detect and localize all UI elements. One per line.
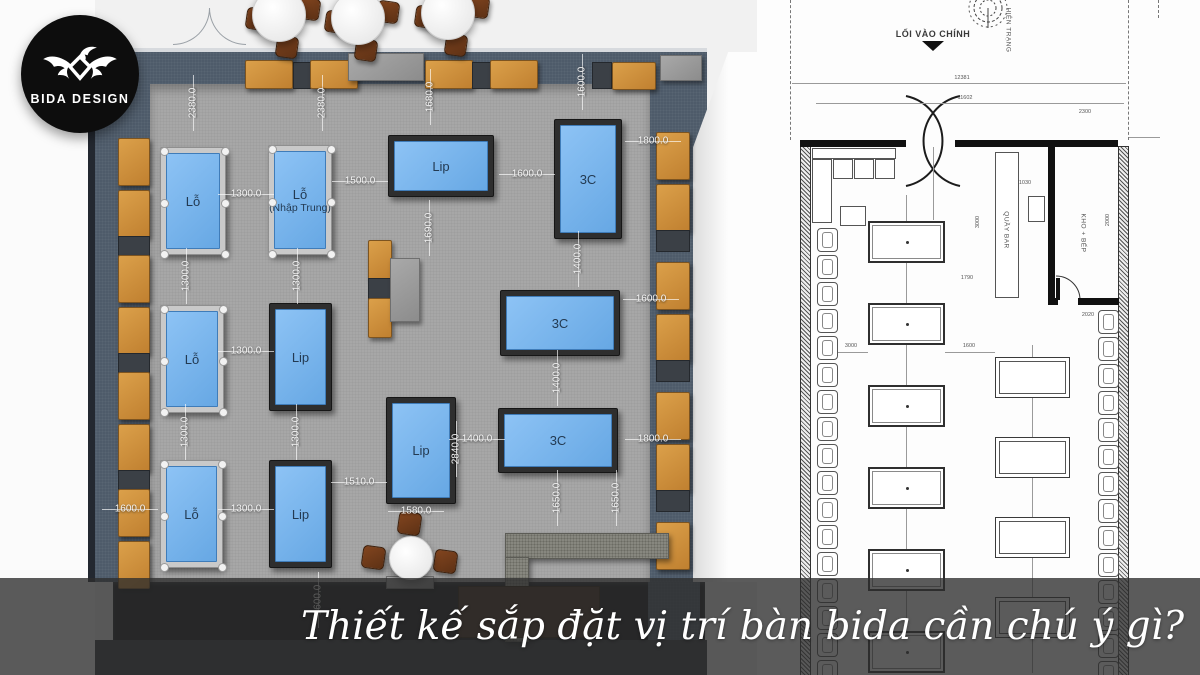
site-status-label: HIỆN TRẠNG — [1005, 8, 1012, 53]
cad-dimension: 2020 — [1082, 312, 1094, 318]
cad-dimension: 2300 — [1079, 109, 1091, 115]
billiard-table: Lỗ — [160, 147, 226, 255]
table-pocket — [160, 357, 169, 366]
table-sub-label: (Nhập Trung) — [269, 202, 331, 214]
dimension-label: 1300.0 — [231, 504, 262, 515]
cad-dimension: 1030 — [1019, 180, 1031, 186]
dimension-label: 1600.0 — [577, 67, 588, 98]
billiard-table: Lip — [388, 135, 494, 197]
table-type-label: 3C — [552, 316, 569, 331]
table-pocket — [160, 408, 169, 417]
cad-billiard-table — [868, 221, 945, 263]
dimension-label: 1300.0 — [291, 417, 302, 448]
dimension-label: 1600.0 — [115, 504, 146, 515]
cad-seat — [817, 363, 838, 387]
cad-seat — [1098, 553, 1119, 577]
bench-spacer — [592, 62, 612, 89]
dim-line — [816, 103, 1124, 104]
bar-counter-label: QUẦY BAR — [1003, 211, 1010, 248]
billiard-table: Lip — [386, 397, 456, 504]
cad-seat — [817, 498, 838, 522]
table-center-dot — [906, 405, 909, 408]
cad-seat — [1098, 391, 1119, 415]
dimension-label: 1580.0 — [401, 506, 432, 517]
dim-line — [945, 352, 995, 353]
table-type-label: Lip — [412, 443, 429, 458]
table-pocket — [219, 408, 228, 417]
bench-cushion — [656, 444, 690, 492]
bench-cushion — [118, 307, 150, 355]
bench-cushion — [368, 240, 392, 280]
cad-seat — [1098, 337, 1119, 361]
bench-spacer — [472, 62, 491, 89]
cad-seat — [1098, 418, 1119, 442]
table-label: Lỗ — [161, 306, 223, 412]
dimension-label: 1400.0 — [462, 434, 493, 445]
table-pocket — [221, 147, 230, 156]
billiard-table: 3C — [498, 408, 618, 473]
bench-spacer — [656, 230, 690, 252]
cad-floorplan: LỐI VÀO CHÍNH HIỆN TRẠNG QUẦY BAR KHO + … — [757, 0, 1200, 675]
round-table — [421, 0, 475, 40]
round-table — [389, 536, 433, 580]
bench-cushion — [245, 60, 293, 89]
dim-line — [838, 352, 868, 353]
table-pocket — [160, 250, 169, 259]
round-table — [252, 0, 306, 42]
sofa-arm — [812, 159, 832, 223]
bench-cushion — [118, 424, 150, 472]
caption-overlay: Thiết kế sắp đặt vị trí bàn bida cần chú… — [0, 578, 1200, 675]
bench-spacer — [368, 278, 392, 300]
entrance-label: LỐI VÀO CHÍNH — [896, 29, 971, 39]
dimension-label: 1300.0 — [181, 261, 192, 292]
dimension-label: 1650.0 — [552, 483, 563, 514]
dimension-label: 1800.0 — [638, 136, 669, 147]
bench-cushion — [368, 298, 392, 338]
dimension-label: 1680.0 — [425, 82, 436, 113]
table-pocket — [218, 512, 227, 521]
dimension-label: 1500.0 — [345, 176, 376, 187]
table-label: Lip — [270, 304, 331, 410]
cad-billiard-table — [995, 437, 1070, 478]
coffee-table — [840, 206, 866, 226]
table-pocket — [268, 145, 277, 154]
bench-cushion — [490, 60, 538, 89]
billiard-table: Lip — [269, 303, 332, 411]
table-pocket — [160, 460, 169, 469]
cad-seat — [817, 336, 838, 360]
table-pocket — [160, 199, 169, 208]
cad-dimension: 11602 — [958, 95, 973, 101]
bench-cushion — [656, 184, 690, 232]
bench-spacer — [118, 353, 150, 374]
cad-seat — [1098, 472, 1119, 496]
sofa-cushion — [833, 159, 853, 179]
cad-seat — [1098, 310, 1119, 334]
caption-text: Thiết kế sắp đặt vị trí bàn bida cần chú… — [301, 604, 1184, 649]
sofa-back — [812, 148, 896, 159]
dimension-label: 1800.0 — [638, 434, 669, 445]
cad-seat — [817, 390, 838, 414]
side-cabinet — [660, 55, 702, 81]
table-type-label: Lip — [432, 159, 449, 174]
table-pocket — [219, 305, 228, 314]
bench-spacer — [118, 470, 150, 491]
dimension-label: 1650.0 — [611, 483, 622, 514]
bench-spacer — [656, 490, 690, 512]
table-type-label: 3C — [580, 172, 597, 187]
table-label: 3C — [499, 409, 617, 472]
dimension-label: 1300.0 — [292, 261, 303, 292]
table-label: Lip — [389, 136, 493, 196]
cad-seat — [817, 255, 838, 279]
door-leaf — [1056, 278, 1060, 300]
bench-cushion — [612, 62, 656, 90]
billiard-table: 3C — [554, 119, 622, 239]
wall — [800, 140, 906, 147]
kitchen-storage-label: KHO + BẾP — [1080, 214, 1087, 253]
cad-dimension: 1600 — [963, 343, 975, 349]
table-pocket — [327, 145, 336, 154]
round-table — [331, 0, 385, 45]
table-center-dot — [906, 569, 909, 572]
bench-cushion — [118, 190, 150, 238]
stool — [433, 549, 459, 575]
bench-cushion — [118, 255, 150, 303]
cad-billiard-table — [995, 357, 1070, 398]
sofa-cushion — [875, 159, 895, 179]
door-swing-arc — [173, 8, 210, 45]
cad-dimension: 1790 — [961, 275, 973, 281]
cad-seat — [817, 552, 838, 576]
cad-seat — [817, 444, 838, 468]
table-center-dot — [906, 241, 909, 244]
table-type-label: Lip — [292, 507, 309, 522]
table-label: Lip — [270, 461, 331, 567]
table-pocket — [160, 305, 169, 314]
dimension-label: 1400.0 — [552, 363, 563, 394]
bench-cushion — [118, 372, 150, 420]
table-pocket — [160, 147, 169, 156]
cad-seat — [1098, 364, 1119, 388]
table-label: Lỗ — [161, 148, 225, 254]
cad-seat — [817, 417, 838, 441]
table-type-label: Lip — [292, 350, 309, 365]
bench-spacer — [118, 236, 150, 257]
wall — [1048, 146, 1055, 304]
wall — [1078, 298, 1119, 305]
dimension-label: 1300.0 — [231, 189, 262, 200]
table-center-dot — [906, 487, 909, 490]
cad-billiard-table — [995, 517, 1070, 558]
brand-name: BIDA DESIGN — [30, 92, 129, 106]
billiard-table: Lỗ — [160, 460, 223, 568]
dimension-label: 1600.0 — [636, 294, 667, 305]
billiard-design-poster: LỗLỗ(Nhập Trung)Lip3CLỗLip3CLip3CLỗLip23… — [0, 0, 1200, 675]
dimension-label: 1400.0 — [573, 244, 584, 275]
table-type-label: 3C — [550, 433, 567, 448]
cad-dimension: 3000 — [845, 343, 857, 349]
cad-billiard-table — [868, 467, 945, 509]
table-pocket — [327, 250, 336, 259]
cad-dimension: 12381 — [954, 75, 969, 81]
cad-seat — [1098, 445, 1119, 469]
table-pocket — [218, 460, 227, 469]
dimension-label: 2380.0 — [317, 88, 328, 119]
bench-spacer — [293, 62, 311, 89]
photo-right-margin — [693, 52, 757, 582]
bench-spacer — [656, 360, 690, 382]
cad-seat — [1098, 499, 1119, 523]
table-label: 3C — [555, 120, 621, 238]
dimension-label: 2380.0 — [188, 88, 199, 119]
stool — [361, 545, 387, 571]
billiard-table: Lỗ(Nhập Trung) — [268, 145, 332, 255]
eagle-icon — [41, 43, 119, 89]
wall — [955, 140, 1118, 147]
table-label: 3C — [501, 291, 619, 355]
bench-cushion — [656, 314, 690, 362]
dim-line — [1128, 137, 1160, 138]
dimension-label: 1600.0 — [512, 169, 543, 180]
dimension-label: 1300.0 — [180, 417, 191, 448]
dimension-label: 1300.0 — [231, 346, 262, 357]
cad-billiard-table — [868, 303, 945, 345]
table-type-label: Lỗ — [186, 194, 200, 209]
entrance-arrow-icon — [922, 41, 944, 51]
boundary-dashed — [1158, 0, 1160, 18]
cad-dimension: 2000 — [1105, 214, 1111, 226]
service-counter — [390, 258, 420, 322]
dimension-label: 2840.0 — [451, 434, 462, 465]
bar-counter-top — [505, 533, 669, 559]
cad-dimension: 3000 — [975, 216, 981, 228]
cad-seat — [817, 228, 838, 252]
table-pocket — [221, 199, 230, 208]
sofa-cushion — [854, 159, 874, 179]
billiard-table: 3C — [500, 290, 620, 356]
guide-line — [933, 147, 934, 220]
cad-seat — [817, 471, 838, 495]
table-pocket — [327, 198, 336, 207]
dim-line — [792, 83, 1126, 84]
door-swing-arc — [209, 8, 246, 45]
cad-seat — [817, 282, 838, 306]
cad-seat — [1098, 526, 1119, 550]
table-pocket — [221, 250, 230, 259]
sink — [1028, 196, 1045, 222]
table-pocket — [160, 563, 169, 572]
table-type-label: Lỗ — [293, 187, 307, 202]
cad-seat — [817, 309, 838, 333]
boundary-dashed — [790, 0, 792, 140]
boundary-dashed — [1128, 0, 1130, 140]
table-center-dot — [906, 323, 909, 326]
brand-logo: BIDA DESIGN — [21, 15, 139, 133]
table-label: Lỗ(Nhập Trung) — [269, 146, 331, 254]
cad-billiard-table — [868, 385, 945, 427]
billiard-table: Lỗ — [160, 305, 224, 413]
table-type-label: Lỗ — [184, 507, 198, 522]
table-pocket — [160, 512, 169, 521]
billiard-table: Lip — [269, 460, 332, 568]
table-pocket — [218, 563, 227, 572]
table-type-label: Lỗ — [185, 352, 199, 367]
table-pocket — [268, 250, 277, 259]
table-pocket — [268, 198, 277, 207]
table-label: Lỗ — [161, 461, 222, 567]
bench-cushion — [118, 138, 150, 186]
table-pocket — [219, 357, 228, 366]
dimension-label: 1690.0 — [424, 213, 435, 244]
cad-seat — [817, 525, 838, 549]
table-label: Lip — [387, 398, 455, 503]
dimension-label: 1510.0 — [344, 477, 375, 488]
